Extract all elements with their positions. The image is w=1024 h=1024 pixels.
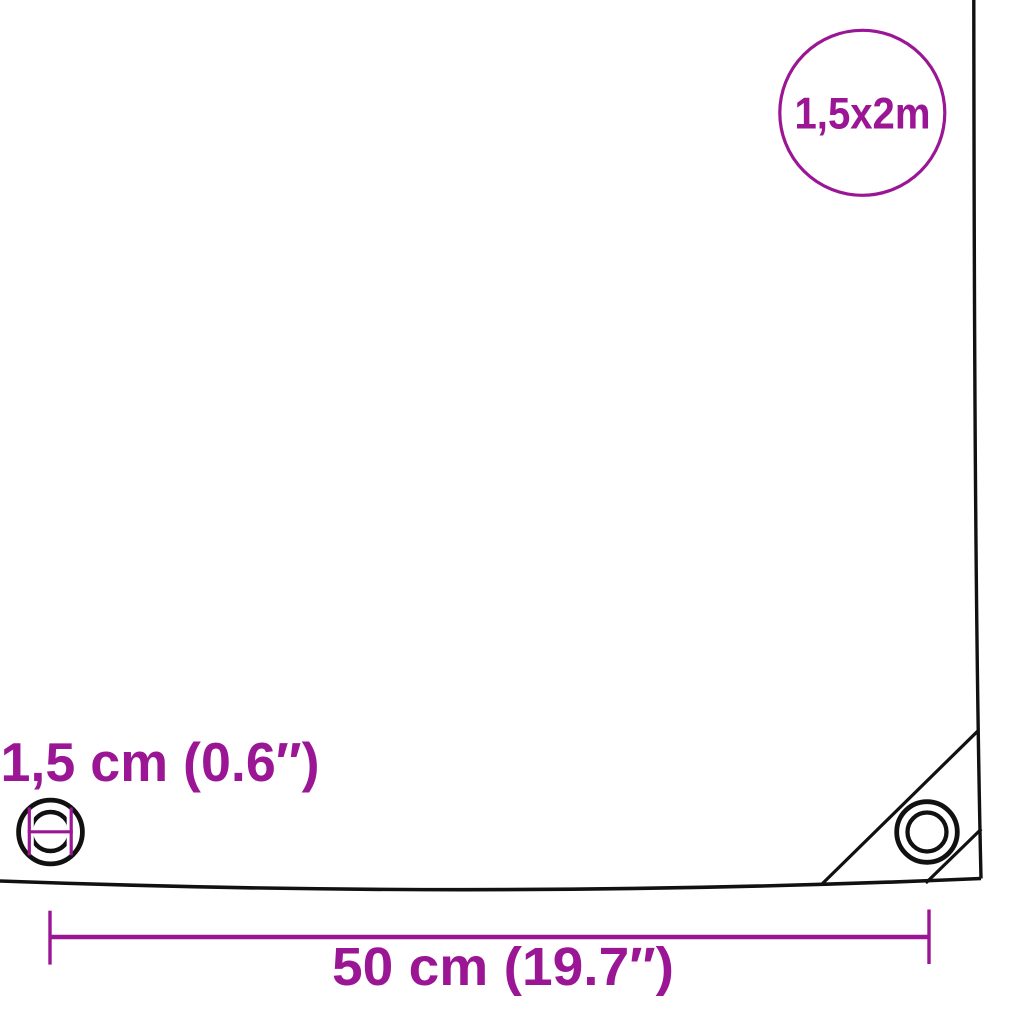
svg-text:1,5 cm (0.6″): 1,5 cm (0.6″) — [1, 731, 320, 793]
svg-text:1,5x2m: 1,5x2m — [795, 90, 931, 139]
svg-text:50 cm (19.7″): 50 cm (19.7″) — [332, 937, 674, 997]
